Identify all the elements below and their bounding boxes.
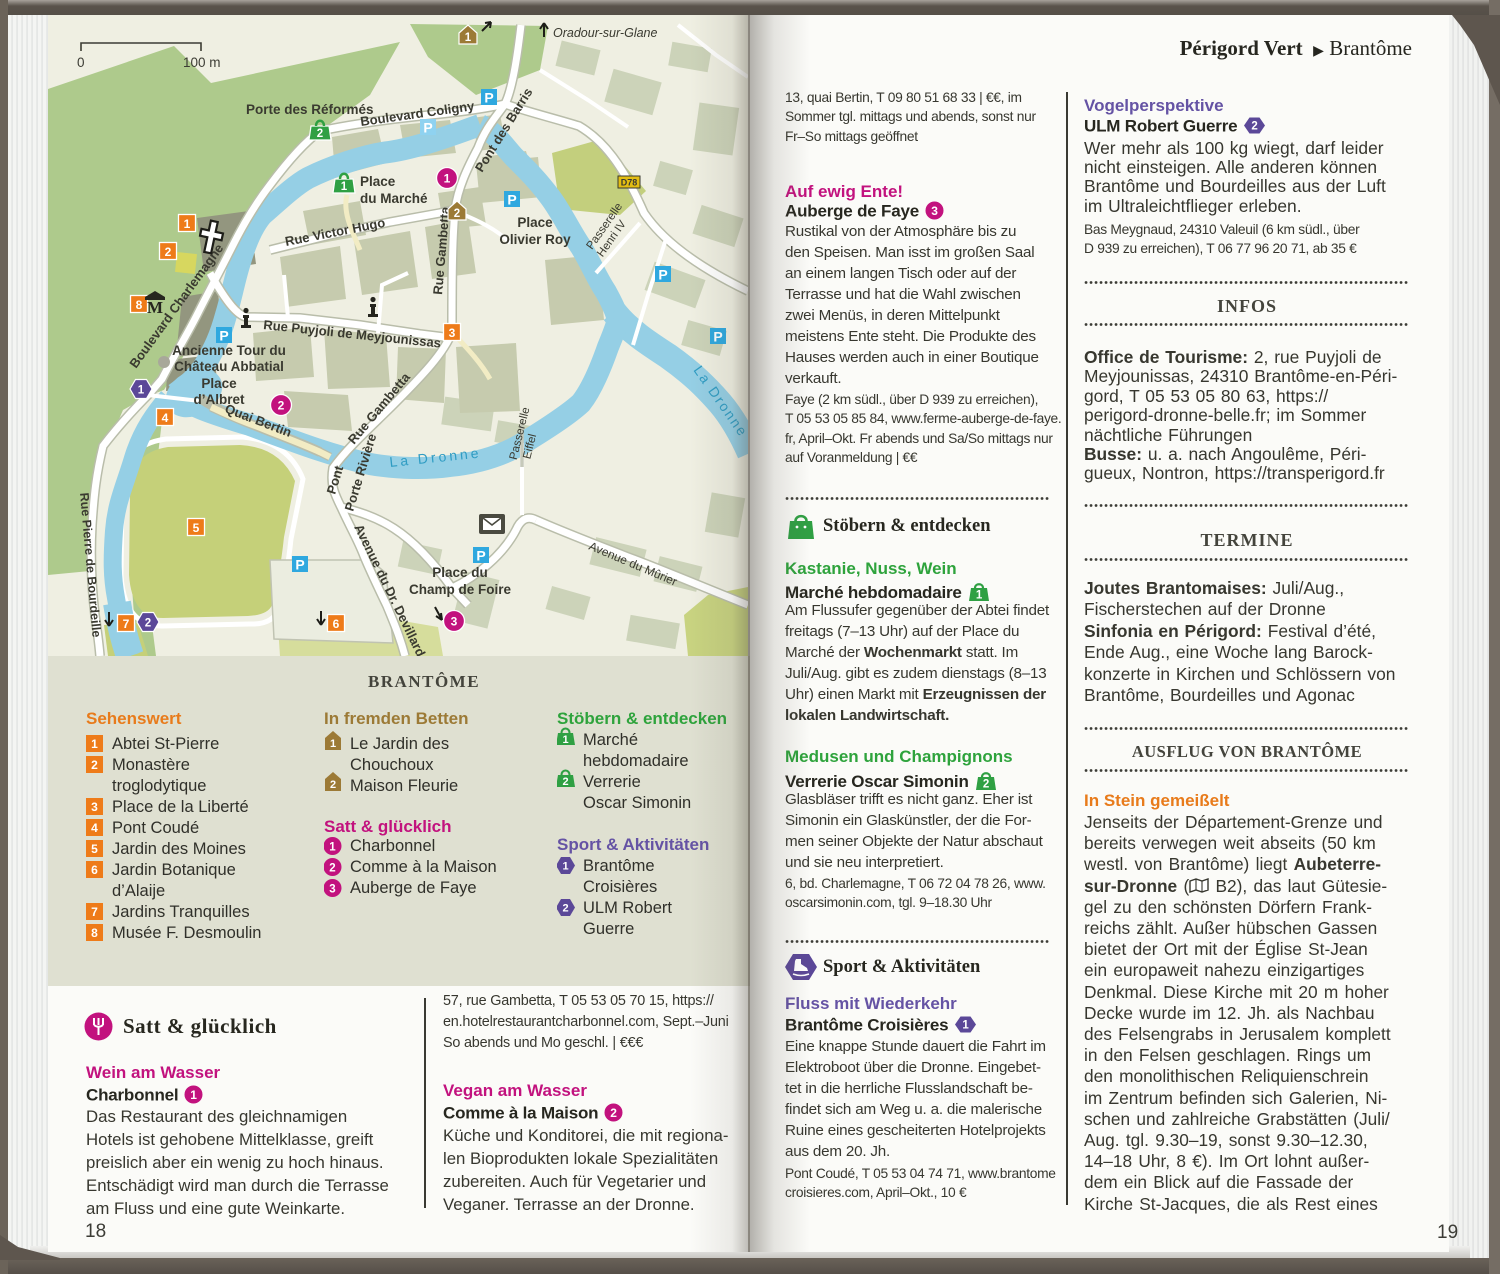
svg-text:Le Jardin des: Le Jardin des — [350, 735, 449, 753]
svg-text:1: 1 — [341, 181, 348, 193]
svg-text:2: 2 — [1252, 121, 1258, 133]
svg-text:Sport & Aktivitäten: Sport & Aktivitäten — [557, 835, 709, 854]
svg-text:1: 1 — [329, 842, 336, 854]
svg-text:2: 2 — [329, 863, 335, 875]
svg-text:Place du: Place du — [432, 565, 488, 580]
svg-text:6: 6 — [333, 617, 340, 631]
svg-text:Abtei St-Pierre: Abtei St-Pierre — [112, 735, 219, 753]
svg-text:3: 3 — [449, 326, 456, 340]
svg-text:Marché: Marché — [583, 731, 638, 749]
svg-text:Verrerie: Verrerie — [583, 773, 641, 791]
svg-text:2: 2 — [454, 208, 460, 220]
svg-text:Jardin Botanique: Jardin Botanique — [112, 861, 236, 879]
svg-text:Place de la Liberté: Place de la Liberté — [112, 798, 249, 816]
svg-text:7: 7 — [123, 617, 130, 631]
svg-text:Oradour-sur-Glane: Oradour-sur-Glane — [553, 26, 657, 40]
svg-text:Jardin des Moines: Jardin des Moines — [112, 840, 246, 858]
svg-text:3: 3 — [931, 204, 938, 218]
svg-text:1: 1 — [562, 861, 568, 873]
svg-text:Monastère: Monastère — [112, 756, 190, 774]
svg-text:Pont Coudé: Pont Coudé — [112, 819, 199, 837]
svg-text:1: 1 — [184, 217, 191, 231]
svg-text:2: 2 — [145, 618, 151, 630]
svg-text:du Marché: du Marché — [360, 191, 428, 206]
svg-text:Chouchoux: Chouchoux — [350, 756, 434, 774]
svg-text:P: P — [423, 120, 432, 136]
svg-text:Auberge de Faye: Auberge de Faye — [350, 879, 477, 897]
svg-text:Château Abbatial: Château Abbatial — [174, 359, 284, 374]
svg-text:2: 2 — [317, 128, 323, 140]
svg-text:Champ de Foire: Champ de Foire — [409, 582, 512, 597]
svg-text:1: 1 — [330, 738, 336, 750]
svg-text:Brantôme: Brantôme — [583, 857, 655, 875]
svg-text:1: 1 — [562, 734, 568, 746]
svg-text:8: 8 — [136, 298, 143, 312]
svg-text:100 m: 100 m — [183, 55, 221, 70]
svg-text:2: 2 — [611, 1106, 618, 1120]
svg-text:7: 7 — [91, 905, 98, 919]
svg-text:Porte des Réformés: Porte des Réformés — [246, 102, 374, 117]
svg-text:3: 3 — [451, 615, 458, 629]
svg-text:1: 1 — [191, 1088, 198, 1102]
svg-text:Jardins Tranquilles: Jardins Tranquilles — [112, 903, 250, 921]
svg-text:Guerre: Guerre — [583, 920, 634, 938]
svg-text:troglodytique: troglodytique — [112, 777, 206, 795]
svg-text:Croisières: Croisières — [583, 878, 657, 896]
svg-text:Oscar Simonin: Oscar Simonin — [583, 794, 691, 812]
svg-text:2: 2 — [562, 903, 568, 915]
svg-text:1: 1 — [963, 1020, 970, 1032]
svg-text:hebdomadaire: hebdomadaire — [583, 752, 689, 770]
svg-text:Satt & glücklich: Satt & glücklich — [324, 817, 452, 836]
svg-text:2: 2 — [91, 758, 98, 772]
svg-text:1: 1 — [465, 32, 472, 44]
svg-text:Musée F. Desmoulin: Musée F. Desmoulin — [112, 924, 261, 942]
svg-text:Charbonnel: Charbonnel — [350, 837, 435, 855]
svg-text:Place: Place — [517, 215, 553, 230]
svg-text:5: 5 — [91, 842, 98, 856]
svg-text:ULM Robert: ULM Robert — [583, 899, 672, 917]
svg-text:0: 0 — [77, 55, 85, 70]
svg-text:D78: D78 — [621, 178, 638, 188]
svg-text:1: 1 — [444, 172, 451, 186]
svg-text:3: 3 — [91, 800, 98, 814]
svg-text:5: 5 — [193, 521, 200, 535]
svg-text:d’Alaije: d’Alaije — [112, 882, 165, 900]
svg-text:4: 4 — [162, 411, 169, 425]
svg-text:M: M — [147, 298, 163, 317]
svg-text:8: 8 — [91, 926, 98, 940]
svg-text:6: 6 — [91, 863, 98, 877]
svg-text:1: 1 — [91, 737, 98, 751]
svg-text:Olivier Roy: Olivier Roy — [499, 232, 571, 247]
svg-text:4: 4 — [91, 821, 98, 835]
svg-text:3: 3 — [329, 884, 335, 896]
svg-text:1: 1 — [138, 385, 145, 397]
svg-text:Place: Place — [201, 376, 237, 391]
svg-text:2: 2 — [278, 399, 285, 413]
svg-text:Maison Fleurie: Maison Fleurie — [350, 777, 458, 795]
svg-text:2: 2 — [562, 776, 568, 788]
svg-text:Ancienne Tour du: Ancienne Tour du — [172, 343, 286, 358]
svg-text:2: 2 — [330, 779, 336, 791]
svg-text:Place: Place — [360, 174, 396, 189]
svg-text:Comme à la Maison: Comme à la Maison — [350, 858, 497, 876]
svg-text:2: 2 — [165, 245, 172, 259]
